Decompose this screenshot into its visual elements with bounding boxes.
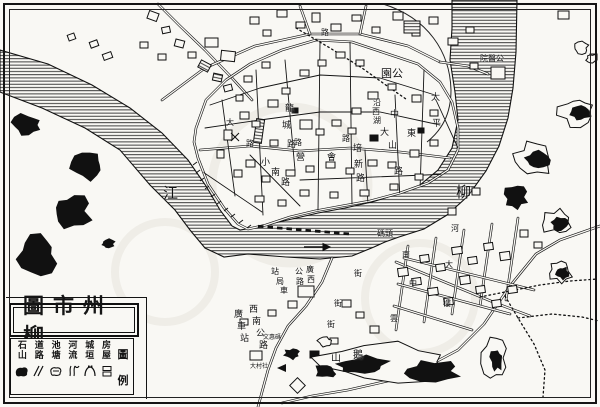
wall-symbol: [82, 364, 98, 378]
pond-symbol: [48, 364, 64, 378]
legend-item-label: 房屋: [102, 341, 111, 361]
map-title-inner-border: 圖市州柳: [13, 307, 135, 333]
map-legend-box: 石山道路池塘河流城垣房屋 圖例: [10, 338, 134, 395]
direction-arrow-icon: [277, 364, 286, 372]
legend-item-road: 道路: [31, 341, 48, 393]
hill-symbol: [14, 364, 30, 378]
legend-item-river: 河流: [64, 341, 81, 393]
legend-title-char: 例: [118, 372, 129, 388]
liuzhou-city-map: 江柳園公院醫公龍城路小南路中山路東太平培新路沿西湖大營會路路大路路碼頭廣西公路站…: [0, 0, 600, 407]
map-title-box: 圖市州柳: [9, 303, 139, 337]
road-symbol: [31, 364, 47, 378]
legend-item-hill: 石山: [14, 341, 31, 393]
legend-item-label: 道路: [35, 341, 44, 361]
legend-item-label: 池塘: [52, 341, 61, 361]
river-symbol: [65, 364, 81, 378]
legend-item-label: 河流: [68, 341, 77, 361]
legend-title: 圖例: [115, 341, 131, 393]
legend-item-label: 城垣: [85, 341, 94, 361]
legend-item-wall: 城垣: [81, 341, 98, 393]
map-cartouche-panel: 圖市州柳 石山道路池塘河流城垣房屋 圖例: [6, 297, 147, 399]
legend-item-pond: 池塘: [48, 341, 65, 393]
legend-title-char: 圖: [118, 346, 129, 362]
legend-items: 石山道路池塘河流城垣房屋: [14, 341, 115, 393]
legend-item-label: 石山: [18, 341, 27, 361]
house-symbol: [99, 364, 115, 378]
legend-item-house: 房屋: [98, 341, 115, 393]
